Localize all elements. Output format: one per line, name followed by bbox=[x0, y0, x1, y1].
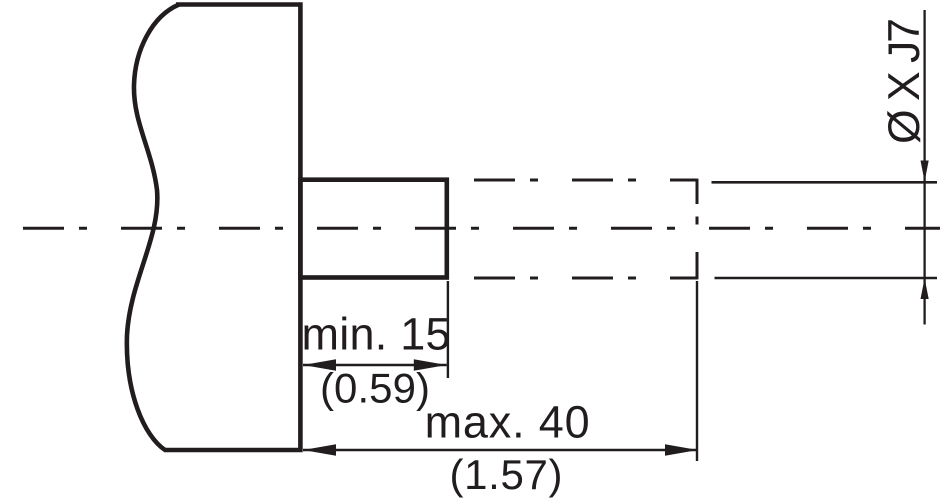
svg-text:(0.59): (0.59) bbox=[320, 365, 430, 412]
svg-text:max. 40: max. 40 bbox=[425, 397, 590, 448]
svg-text:(1.57): (1.57) bbox=[450, 451, 563, 498]
svg-text:Ø X J7: Ø X J7 bbox=[880, 18, 929, 144]
svg-text:min. 15: min. 15 bbox=[302, 309, 451, 360]
